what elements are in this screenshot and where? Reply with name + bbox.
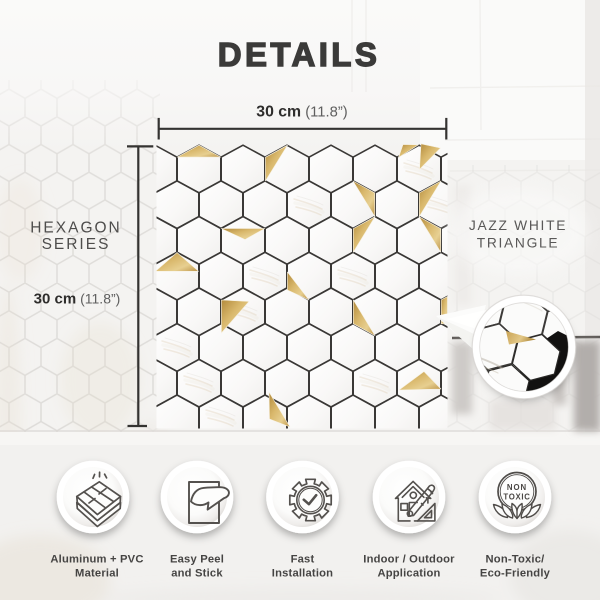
svg-text:HEXAGON: HEXAGON <box>30 220 122 237</box>
svg-text:DETAILS: DETAILS <box>218 36 381 73</box>
svg-text:and Stick: and Stick <box>171 568 223 580</box>
svg-text:Installation: Installation <box>272 568 333 580</box>
svg-text:Fast: Fast <box>291 554 315 566</box>
svg-text:TRIANGLE: TRIANGLE <box>477 236 560 251</box>
svg-text:Non-Toxic/: Non-Toxic/ <box>486 554 545 566</box>
svg-text:Indoor / Outdoor: Indoor / Outdoor <box>363 554 455 566</box>
svg-text:TOXIC: TOXIC <box>503 493 530 502</box>
svg-text:30 cm (11.8”): 30 cm (11.8”) <box>34 291 121 308</box>
svg-text:Application: Application <box>377 568 440 580</box>
svg-text:Aluminum + PVC: Aluminum + PVC <box>50 554 143 566</box>
svg-text:30 cm (11.8”): 30 cm (11.8”) <box>256 104 347 121</box>
svg-text:SERIES: SERIES <box>42 236 111 253</box>
svg-text:Eco-Friendly: Eco-Friendly <box>480 568 551 580</box>
svg-text:Material: Material <box>75 568 119 580</box>
svg-text:Easy Peel: Easy Peel <box>170 554 224 566</box>
svg-text:JAZZ WHITE: JAZZ WHITE <box>469 218 567 233</box>
svg-text:NON: NON <box>507 483 527 492</box>
